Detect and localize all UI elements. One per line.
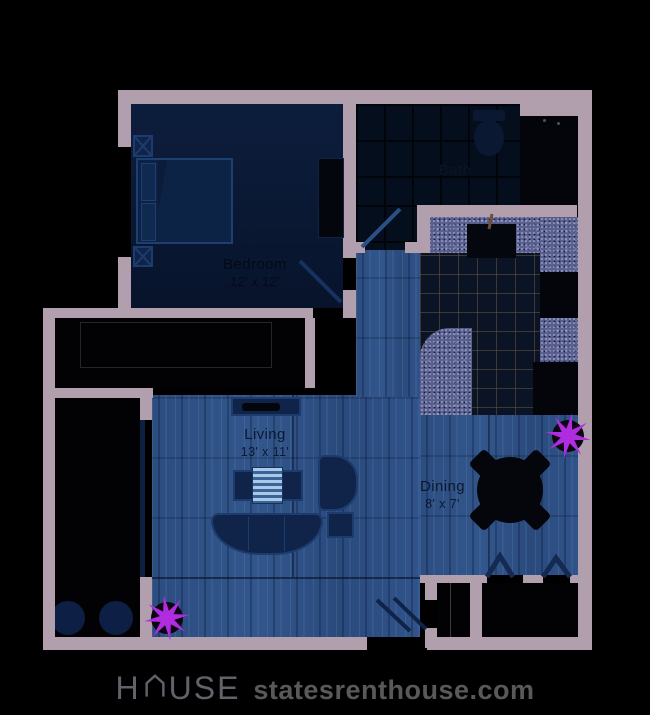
wall-entry-stub-bottom xyxy=(425,628,437,648)
pillow xyxy=(141,163,156,201)
closet-shelf-outline xyxy=(80,322,272,368)
bedroom-dims: 12' x 12' xyxy=(175,275,335,289)
closet-knob-icon xyxy=(543,119,546,122)
wall-bedroom-right-upper xyxy=(343,104,356,258)
wall-closets-divider xyxy=(470,575,482,647)
sofa-seat-line xyxy=(284,517,285,551)
rug xyxy=(252,467,283,504)
plank-seam xyxy=(152,577,420,579)
wall-topright-closet-step xyxy=(520,104,578,116)
floor-plan: Bedroom 12' x 12' Living 13' x 11' Dinin… xyxy=(0,0,650,715)
armchair xyxy=(318,455,358,511)
hallway-floor xyxy=(356,250,420,397)
living-name: Living xyxy=(185,426,345,443)
tv xyxy=(242,403,280,411)
nightstand xyxy=(133,246,153,267)
dining-dims: 8' x 7' xyxy=(395,497,490,511)
wall-bottom-left xyxy=(43,637,367,650)
wall-bedroom-bottom xyxy=(43,308,313,318)
nightstand xyxy=(133,135,153,157)
star-marker-icon xyxy=(142,593,192,643)
wall-top xyxy=(118,90,592,104)
brand-suffix: USE xyxy=(169,670,241,707)
x-mark-icon xyxy=(135,137,151,155)
kitchen-counter-island xyxy=(420,328,472,415)
closet-knob-icon xyxy=(557,122,560,125)
house-icon xyxy=(142,672,168,699)
bedroom-label: Bedroom 12' x 12' xyxy=(175,256,335,290)
toilet-icon xyxy=(465,108,515,163)
wall-closets-band-2 xyxy=(523,575,543,583)
bedroom-name: Bedroom xyxy=(175,256,335,273)
site-text: statesrenthouse.com xyxy=(253,675,534,706)
star-marker-icon xyxy=(543,411,593,461)
pillow xyxy=(141,203,156,241)
brand-logo: H USE xyxy=(116,670,241,707)
wall-bath-kitchen xyxy=(417,205,577,217)
bath-name: Bath xyxy=(410,162,500,179)
wall-closets-band-3 xyxy=(570,575,578,583)
dining-label: Dining 8' x 7' xyxy=(395,478,490,512)
wall-bottom-right xyxy=(427,637,592,650)
wall-bathdoor-stub-right xyxy=(405,242,420,253)
entry-closet xyxy=(437,583,578,637)
wall-bedroom-right-lower xyxy=(343,290,356,318)
stove xyxy=(540,272,578,318)
living-dims: 13' x 11' xyxy=(185,445,345,459)
blanket xyxy=(158,160,231,242)
living-label: Living 13' x 11' xyxy=(185,426,345,460)
hall-closet-top-right xyxy=(520,116,578,205)
kitchen-sink xyxy=(467,224,516,258)
wall-living-left-stub-top xyxy=(140,395,152,420)
tv-console xyxy=(231,397,301,416)
x-mark-icon xyxy=(135,248,151,265)
kitchen-appliance xyxy=(533,362,578,415)
sliding-door xyxy=(140,420,145,577)
wall-closet-bottom xyxy=(43,388,153,398)
wall-closet-right xyxy=(305,318,315,388)
bed xyxy=(136,158,233,244)
balcony-chair xyxy=(51,601,85,635)
bath-label: Bath xyxy=(410,162,500,179)
wall-bathdoor-stub-left xyxy=(352,242,365,253)
wall-entry-stub-top xyxy=(425,583,437,600)
watermark: H USE statesrenthouse.com xyxy=(0,670,650,707)
wall-right xyxy=(578,90,592,650)
balcony-chair xyxy=(99,601,133,635)
wall-bedroom-left-upper xyxy=(118,90,131,147)
dresser xyxy=(318,158,344,238)
sofa-seat-line xyxy=(248,517,249,551)
brand-prefix: H xyxy=(116,670,141,707)
dining-name: Dining xyxy=(395,478,490,495)
closet-divider-line xyxy=(450,583,451,637)
wall-left xyxy=(43,308,55,650)
side-table xyxy=(327,512,354,538)
